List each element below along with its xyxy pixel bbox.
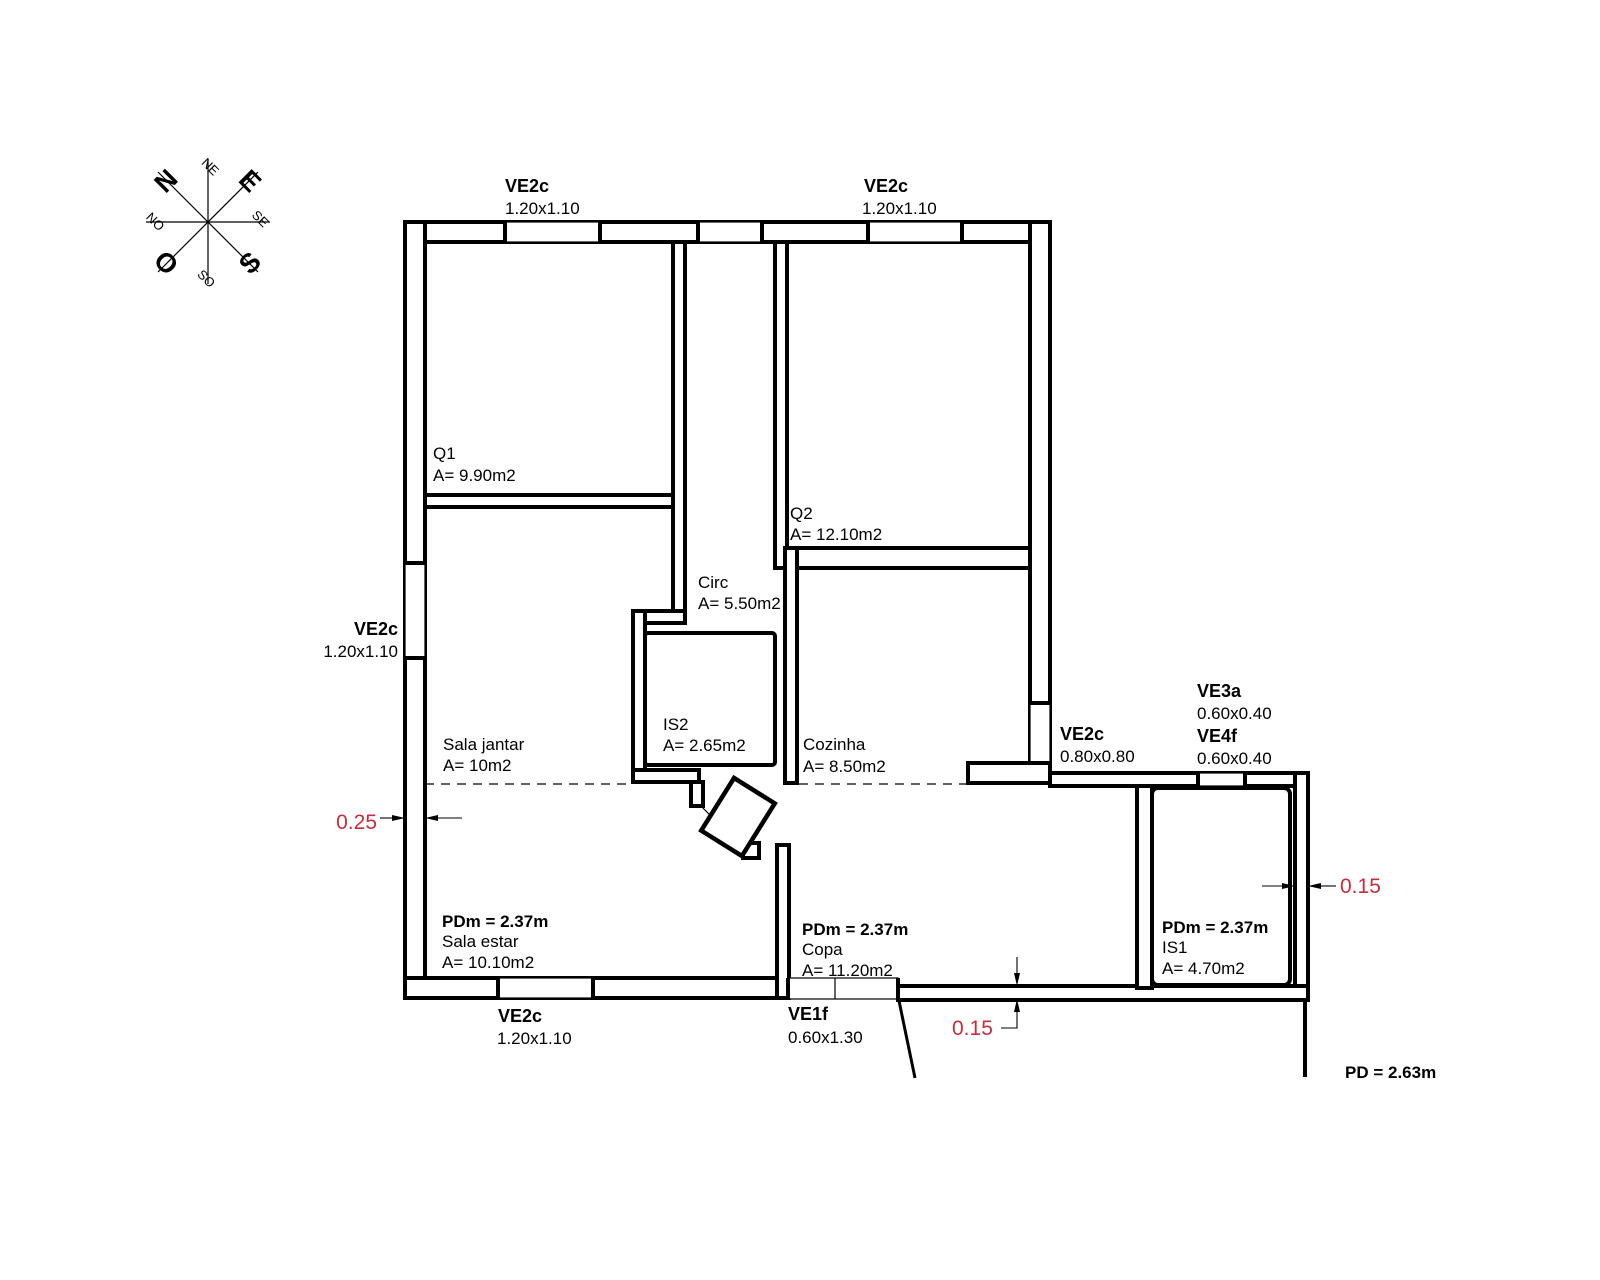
window-bottom-size: 1.20x1.10 xyxy=(497,1029,572,1048)
wall-q2-cozinha xyxy=(787,548,1030,568)
wall-q1-sala xyxy=(425,495,685,507)
door-jamb-upper xyxy=(691,782,703,806)
room-sala-jantar-area: A= 10m2 xyxy=(443,756,512,775)
window-bottom-opening xyxy=(498,978,593,998)
dim-text-bottom-wall: 0.15 xyxy=(952,1017,993,1040)
compass-rose: N E O S NE SE SO NO xyxy=(143,155,272,291)
ceiling-height-note: PD = 2.63m xyxy=(1345,1063,1436,1082)
wall-ext-bottom xyxy=(898,986,1308,1000)
window-openings xyxy=(405,222,1245,999)
kitchen-window-code: VE2c xyxy=(1060,724,1104,744)
kitchen-window-size: 0.80x0.80 xyxy=(1060,747,1135,766)
compass-no: NO xyxy=(143,209,167,233)
room-sala-jantar-name: Sala jantar xyxy=(443,735,525,754)
wall-ext-top xyxy=(1050,773,1308,786)
window-left-size: 1.20x1.10 xyxy=(323,642,398,661)
window-left-code: VE2c xyxy=(354,619,398,639)
kitchen-window-opening xyxy=(1030,703,1050,763)
wall-ext-right xyxy=(1295,773,1308,1000)
room-copa-name: Copa xyxy=(802,940,843,959)
compass-so: SO xyxy=(194,267,218,291)
ve4f-code: VE4f xyxy=(1197,726,1238,746)
window-top-left-code: VE2c xyxy=(505,176,549,196)
compass-se: SE xyxy=(249,207,272,230)
wall-sala-circ xyxy=(673,242,685,617)
window-top-right-opening xyxy=(868,222,962,242)
room-q1-name: Q1 xyxy=(433,444,456,463)
floor-plan-canvas: 0.25 0.15 0.15 PD = 2.63m VE2c 1.20x1.10… xyxy=(0,0,1600,1280)
wall-right-main xyxy=(1030,222,1050,783)
compass-ne: NE xyxy=(199,155,223,179)
room-sala-estar-area: A= 10.10m2 xyxy=(442,953,534,972)
ve4f-size: 0.60x0.40 xyxy=(1197,749,1272,768)
interior-door-leaf xyxy=(701,778,775,856)
room-sala-estar-pdm: PDm = 2.37m xyxy=(442,912,548,931)
ve3a-size: 0.60x0.40 xyxy=(1197,704,1272,723)
dimension-left-wall: 0.25 xyxy=(336,811,462,834)
compass-s: S xyxy=(233,246,267,280)
floor-plan-drawing: 0.25 0.15 0.15 PD = 2.63m VE2c 1.20x1.10… xyxy=(0,0,1600,1280)
entry-door-leaf xyxy=(898,996,915,1078)
wall-copa-left xyxy=(777,845,789,998)
room-sala-estar-name: Sala estar xyxy=(442,932,519,951)
room-circ-area: A= 5.50m2 xyxy=(698,594,781,613)
window-top-right-code: VE2c xyxy=(864,176,908,196)
opening-above-circ xyxy=(698,222,762,242)
room-q2-name: Q2 xyxy=(790,504,813,523)
room-is1-name: IS1 xyxy=(1162,938,1188,957)
compass-o: O xyxy=(148,245,184,281)
window-top-right-size: 1.20x1.10 xyxy=(862,199,937,218)
room-q2-area: A= 12.10m2 xyxy=(790,525,882,544)
room-q1-area: A= 9.90m2 xyxy=(433,466,516,485)
window-left-opening xyxy=(405,563,425,658)
window-top-left-opening xyxy=(505,222,600,242)
room-is1-area: A= 4.70m2 xyxy=(1162,959,1245,978)
wall-kitchen-bar xyxy=(968,763,1050,783)
room-is2-area: A= 2.65m2 xyxy=(663,736,746,755)
room-is1-pdm: PDm = 2.37m xyxy=(1162,918,1268,937)
window-top-left-size: 1.20x1.10 xyxy=(505,199,580,218)
compass-n: N xyxy=(148,163,183,198)
window-bottom-code: VE2c xyxy=(498,1006,542,1026)
entry-window-size: 0.60x1.30 xyxy=(788,1028,863,1047)
entry-window-code: VE1f xyxy=(788,1004,829,1024)
room-circ-name: Circ xyxy=(698,573,729,592)
entry-window-opening xyxy=(788,978,898,999)
room-copa-area: A= 11.20m2 xyxy=(802,961,893,980)
ve3a-code: VE3a xyxy=(1197,681,1242,701)
wall-copa-is1 xyxy=(1137,786,1152,988)
compass-e: E xyxy=(233,164,267,198)
room-is2-name: IS2 xyxy=(663,715,689,734)
room-cozinha-area: A= 8.50m2 xyxy=(803,757,886,776)
dim-text-right-wall: 0.15 xyxy=(1340,875,1381,898)
dim-text-left-wall: 0.25 xyxy=(336,811,377,834)
wall-circ-q2 xyxy=(775,242,787,568)
dim-leader xyxy=(1001,1012,1017,1028)
wall-cozinha-left xyxy=(785,548,797,783)
room-copa-pdm: PDm = 2.37m xyxy=(802,920,908,939)
room-cozinha-name: Cozinha xyxy=(803,735,866,754)
is1-window-opening xyxy=(1198,773,1245,786)
